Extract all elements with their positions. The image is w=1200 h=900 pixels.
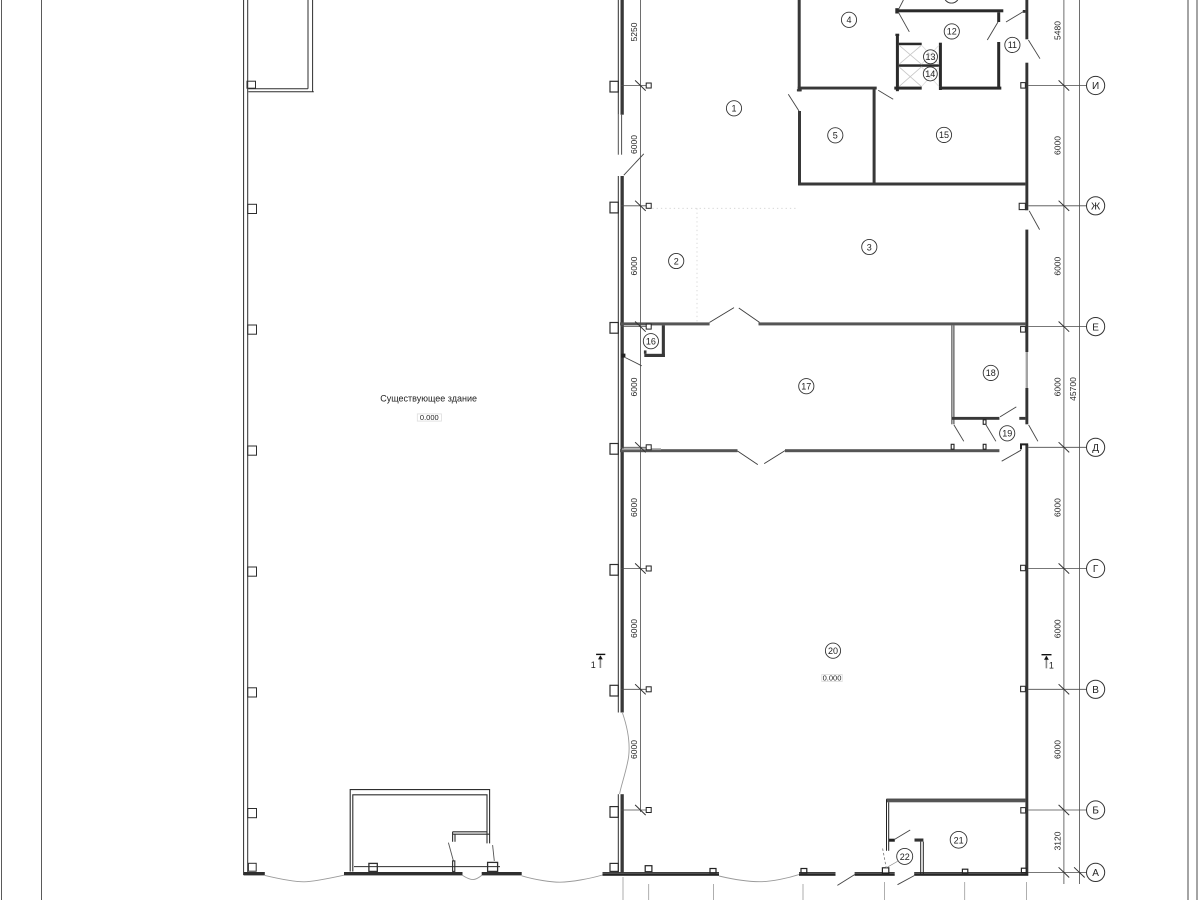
svg-text:В: В — [1092, 685, 1099, 696]
svg-text:45700: 45700 — [1068, 377, 1078, 401]
svg-text:5480: 5480 — [1052, 21, 1062, 40]
svg-text:14: 14 — [925, 69, 935, 79]
svg-text:Б: Б — [1092, 806, 1099, 817]
svg-text:13: 13 — [925, 52, 935, 62]
svg-text:6000: 6000 — [629, 377, 639, 396]
svg-text:Д: Д — [1092, 443, 1099, 454]
svg-text:3: 3 — [867, 242, 872, 252]
svg-text:1: 1 — [1049, 660, 1054, 670]
svg-text:А: А — [1092, 868, 1099, 879]
svg-text:6000: 6000 — [629, 256, 639, 275]
svg-text:21: 21 — [954, 835, 964, 845]
svg-text:19: 19 — [1002, 429, 1012, 439]
svg-text:20: 20 — [828, 646, 838, 656]
svg-text:1: 1 — [591, 660, 596, 670]
svg-text:6000: 6000 — [629, 498, 639, 517]
svg-text:2: 2 — [674, 256, 679, 266]
svg-text:Существующее здание: Существующее здание — [380, 394, 477, 404]
svg-text:6000: 6000 — [629, 619, 639, 638]
svg-text:11: 11 — [1008, 40, 1017, 50]
svg-text:5250: 5250 — [629, 22, 639, 41]
svg-text:0.000: 0.000 — [420, 413, 439, 422]
svg-text:16: 16 — [646, 337, 656, 347]
svg-text:6000: 6000 — [1052, 256, 1062, 275]
svg-text:Ж: Ж — [1091, 202, 1101, 213]
svg-text:4: 4 — [846, 15, 851, 25]
svg-text:6000: 6000 — [1052, 740, 1062, 759]
svg-text:Г: Г — [1093, 564, 1099, 575]
svg-text:6000: 6000 — [1052, 498, 1062, 517]
svg-text:6000: 6000 — [629, 740, 639, 759]
svg-text:22: 22 — [900, 852, 910, 862]
svg-text:6000: 6000 — [1052, 136, 1062, 155]
svg-text:0.000: 0.000 — [823, 674, 842, 683]
svg-text:17: 17 — [801, 382, 811, 392]
svg-text:Е: Е — [1092, 322, 1099, 333]
svg-text:6000: 6000 — [629, 135, 639, 154]
svg-text:15: 15 — [939, 130, 949, 140]
svg-text:3120: 3120 — [1052, 831, 1062, 850]
svg-text:И: И — [1092, 81, 1099, 92]
svg-text:12: 12 — [947, 27, 957, 37]
svg-text:6000: 6000 — [1052, 619, 1062, 638]
svg-text:5: 5 — [833, 131, 838, 141]
svg-text:6000: 6000 — [1052, 377, 1062, 396]
svg-text:18: 18 — [986, 368, 996, 378]
svg-text:1: 1 — [731, 104, 736, 114]
